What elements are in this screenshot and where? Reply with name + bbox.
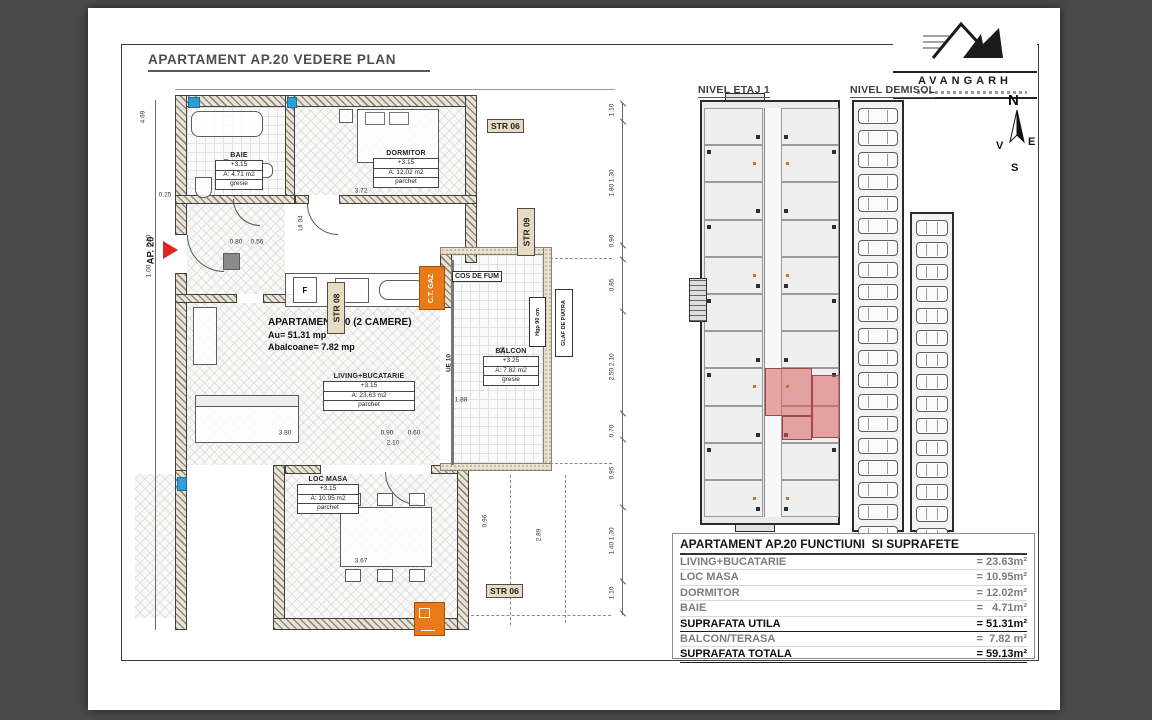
car-icon [916,330,948,346]
unit-cell [704,368,763,405]
wall [175,95,187,235]
wall [273,465,285,630]
dimension-label: 1.88 [455,397,468,404]
car-icon [858,174,898,190]
car-icon [916,286,948,302]
dim-tick [620,504,626,510]
car-icon [858,218,898,234]
tag-cos-de-fum: COS DE FUM [452,271,502,282]
area-row-value: = 7.82 m² [977,632,1027,646]
wall-mark [784,284,788,288]
tv-cabinet [193,307,217,365]
room-label-living: LIVING+BUCATARIE +3.15 A: 23.63 m2 parch… [323,373,415,411]
entrance-arrow-icon [163,241,178,259]
car-icon [916,462,948,478]
area-row: LOC MASA= 10.95m² [680,570,1027,585]
unit-cell [704,145,763,182]
car-icon [858,350,898,366]
tag-str06-top: STR 06 [487,119,524,133]
wall [465,95,477,263]
car-icon [858,152,898,168]
wall-mark [756,209,760,213]
car-icon [916,506,948,522]
wall-mark [756,135,760,139]
area-row-label: BALCON/TERASA [680,632,775,646]
etaj1-stairs [689,278,707,322]
unit-cell [781,182,839,219]
dimension-label: 1.00 [146,265,153,278]
area-row: BALCON/TERASA= 7.82 m² [680,632,1027,647]
unit-cell [781,220,839,257]
window-marker [188,97,200,108]
area-row-value: = 4.71m² [977,601,1027,615]
unit-cell [781,257,839,294]
balcony-wall [543,247,552,471]
unit-glyph [419,608,430,618]
car-icon [858,108,898,124]
area-table: APARTAMENT AP.20 FUNCTIUNI SI SUPRAFETE … [672,533,1035,659]
wall [175,273,187,473]
wall [285,95,295,203]
tag-ct-gaz: C.T. GAZ [419,266,445,310]
car-icon [916,418,948,434]
car-icon [916,440,948,456]
annotation-line3: Abalcoane= 7.82 mp [268,342,412,352]
area-table-title: APARTAMENT AP.20 FUNCTIUNI SI SUPRAFETE [680,537,1027,555]
car-icon [858,372,898,388]
washer [223,253,240,270]
demisol-plan [852,100,952,540]
area-row-value: = 12.02m² [977,586,1027,600]
etaj1-label: NIVEL ETAJ 1 [698,84,770,98]
wall-mark [832,225,836,229]
tag-str08: STR 08 [327,282,345,334]
car-icon [858,196,898,212]
car-icon [858,284,898,300]
drawing-title: APARTAMENT AP.20 VEDERE PLAN [148,52,430,72]
door-mark [753,274,756,277]
dimension-label: 0.56 [251,239,264,246]
sofa-back [195,395,299,407]
car-icon [858,504,898,520]
bathtub [191,111,263,137]
dimension-label: 1.10 [609,587,616,600]
wall [175,294,237,303]
car-icon [858,394,898,410]
chair [409,569,425,582]
door-mark [753,385,756,388]
pillow [365,112,385,125]
dimension-label: 0.90 [381,430,394,437]
drawing-canvas: APARTAMENT AP.20 VEDERE PLAN AVANGARH N … [0,0,1152,720]
dimension-label: 0.25 [159,192,172,199]
etaj1-outline [700,100,840,525]
wall-mark [756,284,760,288]
dim-tick [620,410,626,416]
sheet: APARTAMENT AP.20 VEDERE PLAN AVANGARH N … [88,8,1060,710]
wall-mark [707,448,711,452]
unit-glyph [421,630,435,632]
area-row-value: = 59.13m² [977,647,1027,661]
car-icon [858,262,898,278]
dimension-label: 3.80 [279,430,292,437]
dim-chain-left [155,100,156,630]
area-row-label: SUPRAFATA UTILA [680,617,781,631]
unit-cell [704,294,763,331]
dimension-label: 0.96 [482,515,489,528]
unit-cell [704,220,763,257]
door-mark [753,162,756,165]
wall-mark [832,150,836,154]
car-icon [858,438,898,454]
dash-line [550,463,612,464]
door-mark [786,497,789,500]
chair [409,493,425,506]
unit-cell [781,331,839,368]
area-row: SUPRAFATA TOTALA= 59.13m² [680,647,1027,662]
logo-divider-top [893,71,1037,73]
unit-cell [704,257,763,294]
area-row: DORMITOR= 12.02m² [680,586,1027,601]
tag-glaf: GLAF DE PIATRA [555,289,573,357]
dim-tick [620,100,626,106]
car-icon [916,264,948,280]
parking-strip-right [910,212,954,532]
dash-line [565,475,566,623]
room-label-dormitor: DORMITOR +3.15 A: 12.02 m2 parchet [373,150,439,188]
tag-ui04: UI 04 [298,215,305,231]
dimension-label: 0.95 [609,467,616,480]
car-icon [916,484,948,500]
compass-needle-icon [1007,110,1027,146]
door-mark [786,162,789,165]
dim-tick [620,308,626,314]
demisol-label: NIVEL DEMISOL [850,84,935,98]
compass-west-label: V [996,140,1003,152]
car-icon [858,482,898,498]
balcony-wall [440,463,552,471]
car-icon [916,352,948,368]
unit-cell [781,443,839,480]
wall-mark [707,373,711,377]
car-icon [916,242,948,258]
area-row-label: LOC MASA [680,570,739,584]
wall-mark [784,507,788,511]
etaj1-entry-bottom [735,524,775,532]
compass-north-label: N [1008,92,1019,109]
wall-mark [784,209,788,213]
dimension-label: 3.67 [355,558,368,565]
dimension-label: 0.60 [408,430,421,437]
chair [377,493,393,506]
dimension-label: 0.90 [609,235,616,248]
wall [295,195,309,204]
chair [345,569,361,582]
area-row: LIVING+BUCATARIE= 23.63m² [680,555,1027,570]
dimension-label: 2.50 2.10 [609,353,616,380]
car-icon [858,240,898,256]
unit-cell [704,480,763,517]
dimension-label: 4.69 [140,111,147,124]
car-icon [858,130,898,146]
dimension-label: 1.10 [609,104,616,117]
door-mark [786,274,789,277]
compass-south-label: S [1011,162,1018,174]
tag-ue10: UE 10 [446,354,453,372]
unit-cell [704,331,763,368]
balcony-wall [440,247,552,255]
unit-cell [781,480,839,517]
dimension-label: 1.80 1.30 [609,169,616,196]
area-row: SUPRAFATA UTILA= 51.31m² [680,617,1027,632]
area-row-label: BAIE [680,601,706,615]
wall-mark [756,433,760,437]
car-icon [858,328,898,344]
unit-cell [704,182,763,219]
dimension-label: 0.70 [609,425,616,438]
area-row-value: = 23.63m² [977,555,1027,569]
unit-cell [781,145,839,182]
dimension-label: 2.10 [387,440,400,447]
etaj1-corridor [764,108,782,517]
wall-mark [707,225,711,229]
area-row-label: DORMITOR [680,586,740,600]
car-icon [916,220,948,236]
nightstand [339,109,353,123]
parking-strip-left [852,100,904,532]
main-floor-plan: F [135,95,632,642]
area-row: BAIE= 4.71m² [680,601,1027,616]
wall-mark [784,358,788,362]
area-row-label: SUPRAFATA TOTALA [680,647,792,661]
wall-mark [756,507,760,511]
wall [339,195,477,204]
car-icon [858,416,898,432]
compass: N V E S [996,92,1038,182]
dim-tick [620,578,626,584]
etaj1-plan [700,100,840,525]
tag-hgp: Hgp 90 cm [529,297,546,347]
logo-mark [923,18,1009,60]
chair [377,569,393,582]
room-label-baie: BAIE +3.15 A: 4.71 m2 gresie [215,152,263,190]
dash-line [471,615,611,616]
dim-tick [620,610,626,616]
wall [175,470,187,630]
car-icon [858,306,898,322]
car-icon [916,308,948,324]
toilet [195,177,212,198]
room-label-locmasa: LOC MASA +3.15 A: 10.95 m2 parchet [297,476,359,514]
wall-mark [832,299,836,303]
room-label-balcon: BALCON +3.25 A: 7.82 m2 gresie [483,348,539,386]
tag-str06-bottom: STR 06 [486,584,523,598]
dim-tick [620,242,626,248]
door-mark [753,497,756,500]
unit-cell [704,108,763,145]
dim-chain-right [622,103,623,615]
dash-line [510,475,511,625]
wall-mark [756,358,760,362]
fridge: F [293,277,317,303]
dimension-label: 2.89 [536,529,543,542]
highlighted-balcony [812,375,840,438]
car-icon [858,460,898,476]
area-row-label: LIVING+BUCATARIE [680,555,786,569]
compass-east-label: E [1028,136,1035,148]
heating-unit-box [414,602,445,636]
dim-tick [620,436,626,442]
window-marker [287,97,297,108]
pillow [389,112,409,125]
wall-mark [707,150,711,154]
wall [457,470,469,630]
apartment-marker-label: AP. 20 [145,237,156,265]
fridge-label: F [303,286,308,295]
dimension-label: 1.40 1.30 [609,527,616,554]
dim-tick [620,118,626,124]
area-row-value: = 10.95m² [977,570,1027,584]
dim-line-top [175,89,615,90]
door-arc-dormitor [307,204,338,235]
wall-mark [707,299,711,303]
dimension-label: 0.80 [230,239,243,246]
tag-str09: STR 09 [517,208,535,256]
dimension-label: 3.72 [355,188,368,195]
wall-mark [832,448,836,452]
highlighted-room [782,416,812,440]
wall [285,465,321,474]
window-marker [177,477,187,491]
dim-tick [620,256,626,262]
unit-cell [704,443,763,480]
unit-cell [781,108,839,145]
wall-mark [784,135,788,139]
wall [175,95,477,107]
car-icon [916,374,948,390]
car-icon [916,396,948,412]
area-row-value: = 51.31m² [977,617,1027,631]
dimension-label: 0.85 [609,279,616,292]
unit-cell [781,294,839,331]
highlighted-apartment [765,368,812,416]
dash-line [550,258,612,259]
unit-cell [704,406,763,443]
